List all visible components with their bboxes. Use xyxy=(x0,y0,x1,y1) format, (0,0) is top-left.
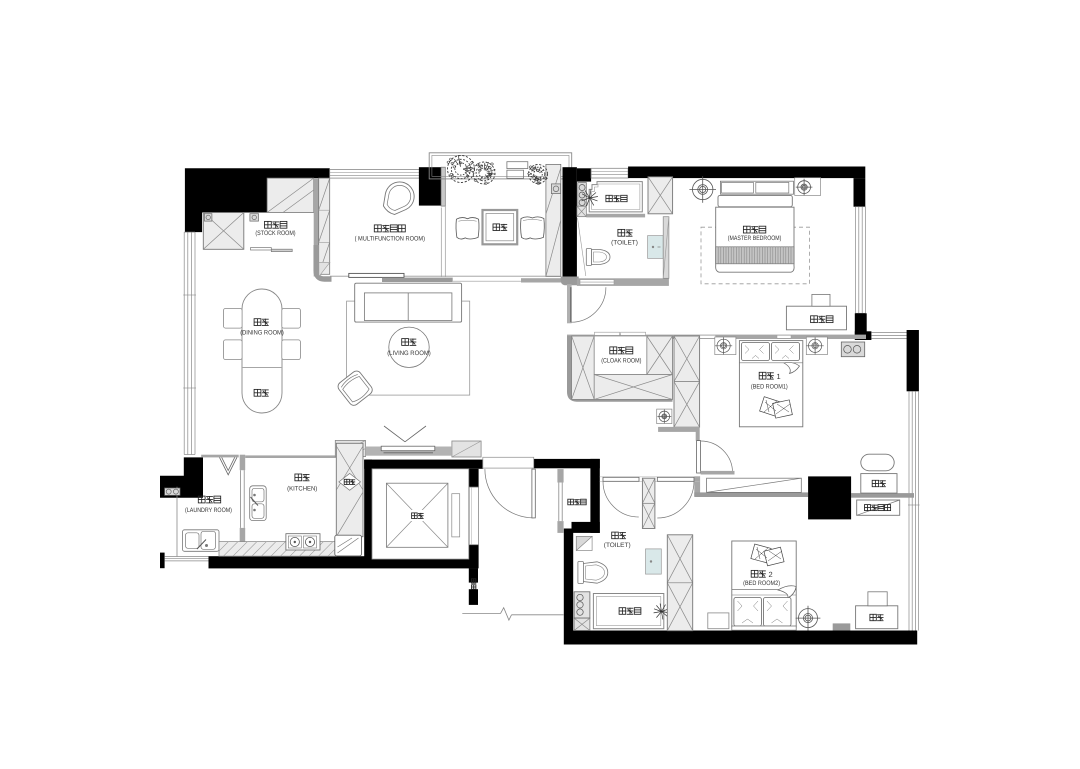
svg-text:(TOILET): (TOILET) xyxy=(611,240,638,247)
svg-text:(STOCK ROOM): (STOCK ROOM) xyxy=(255,230,295,237)
svg-text:(BED ROOM1): (BED ROOM1) xyxy=(751,384,788,391)
svg-text:( MULTIFUNCTION ROOM): ( MULTIFUNCTION ROOM) xyxy=(355,236,425,243)
svg-text:2: 2 xyxy=(769,570,773,579)
svg-text:(LIVING ROOM): (LIVING ROOM) xyxy=(387,350,431,357)
svg-text:1: 1 xyxy=(777,372,781,381)
svg-text:(LAUNDRY ROOM): (LAUNDRY ROOM) xyxy=(185,507,232,514)
svg-text:(CLOAK ROOM): (CLOAK ROOM) xyxy=(601,357,641,364)
svg-text:(KITCHEN): (KITCHEN) xyxy=(287,485,317,492)
svg-text:(BED ROOM2): (BED ROOM2) xyxy=(743,580,780,587)
svg-text:(TOILET): (TOILET) xyxy=(604,542,631,549)
svg-text:(DINING ROOM): (DINING ROOM) xyxy=(240,330,284,337)
svg-text:(MASTER BEDROOM): (MASTER BEDROOM) xyxy=(728,235,782,242)
